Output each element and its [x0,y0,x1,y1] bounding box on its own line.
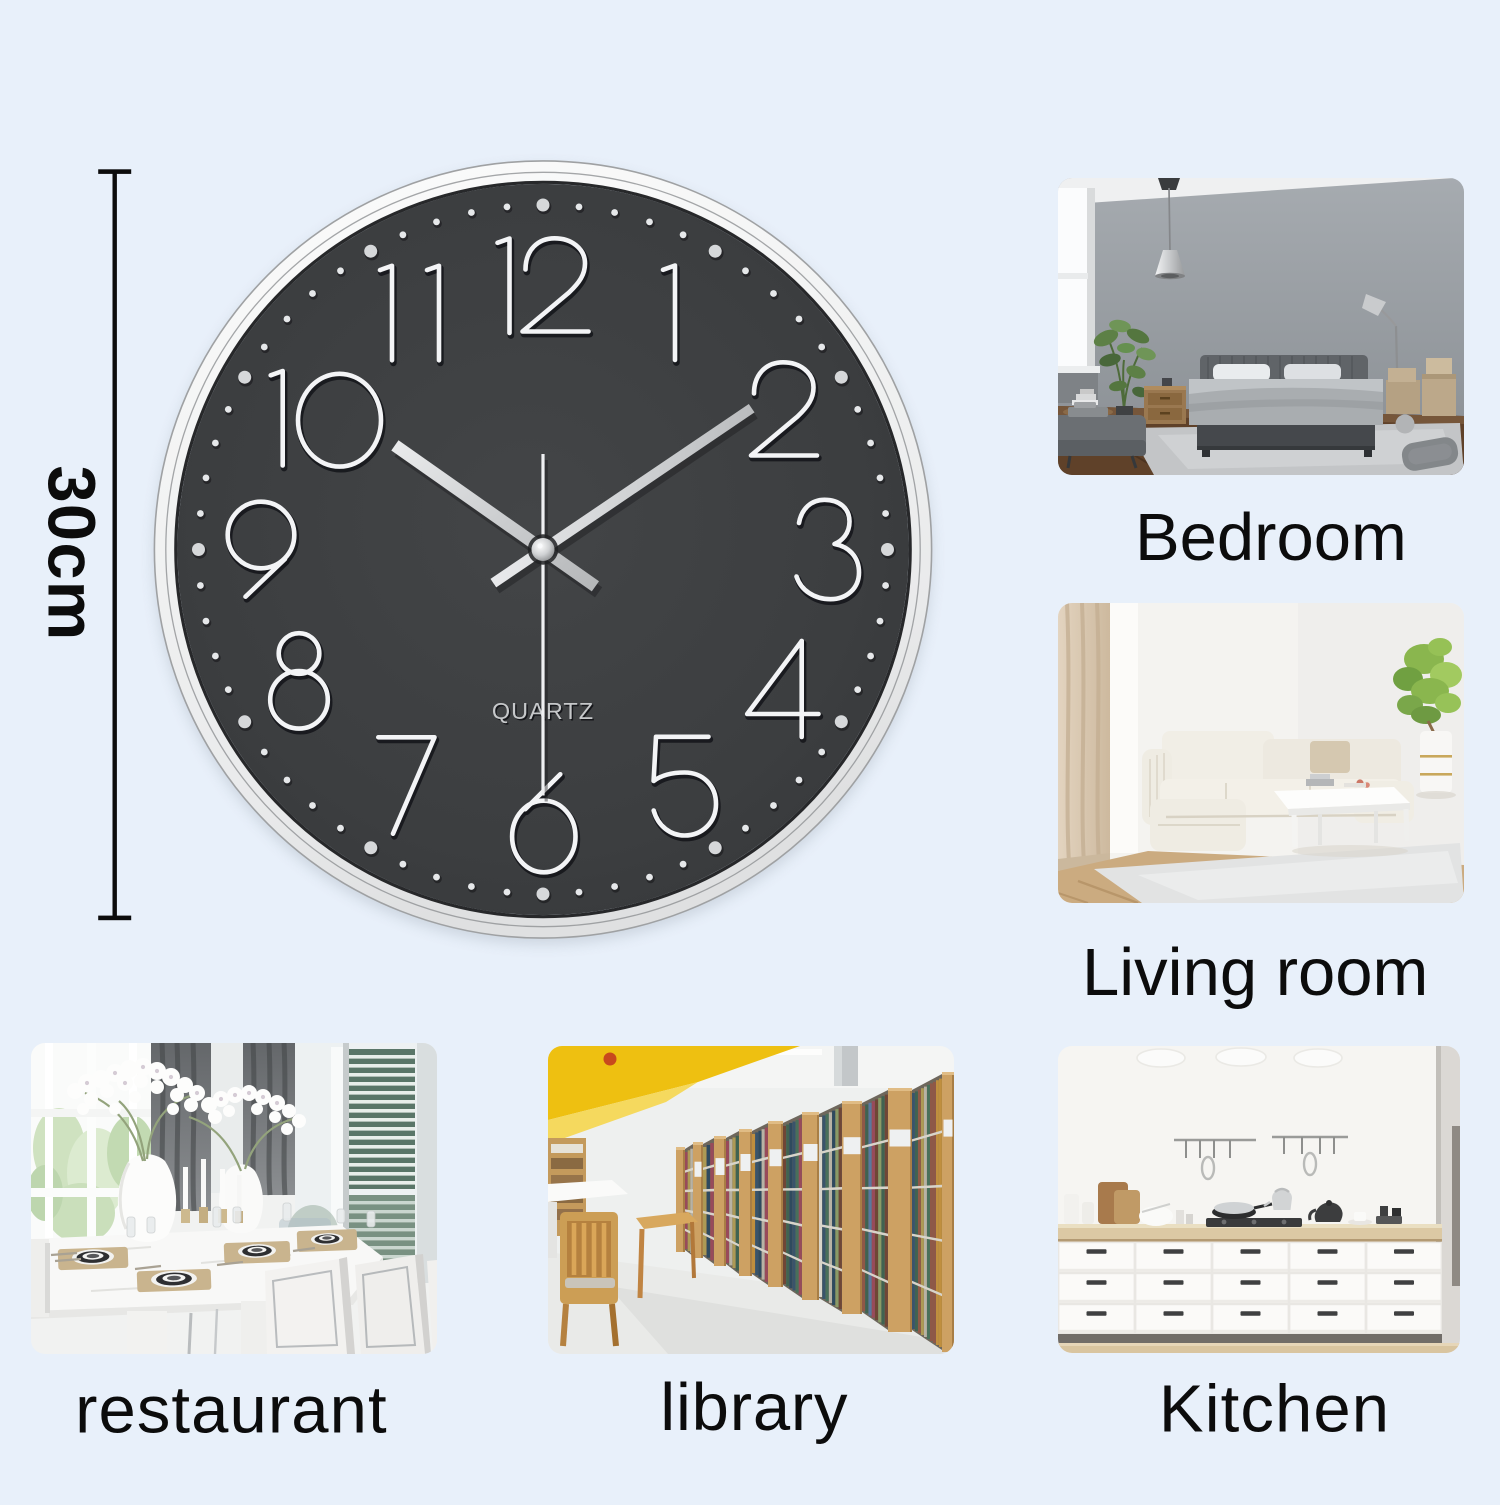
svg-text:30cm: 30cm [33,465,108,641]
svg-text:library: library [660,1370,848,1445]
svg-text:Bedroom: Bedroom [1135,500,1407,575]
svg-text:Living room: Living room [1082,935,1428,1010]
svg-text:Kitchen: Kitchen [1159,1372,1390,1447]
svg-text:restaurant: restaurant [75,1373,388,1448]
